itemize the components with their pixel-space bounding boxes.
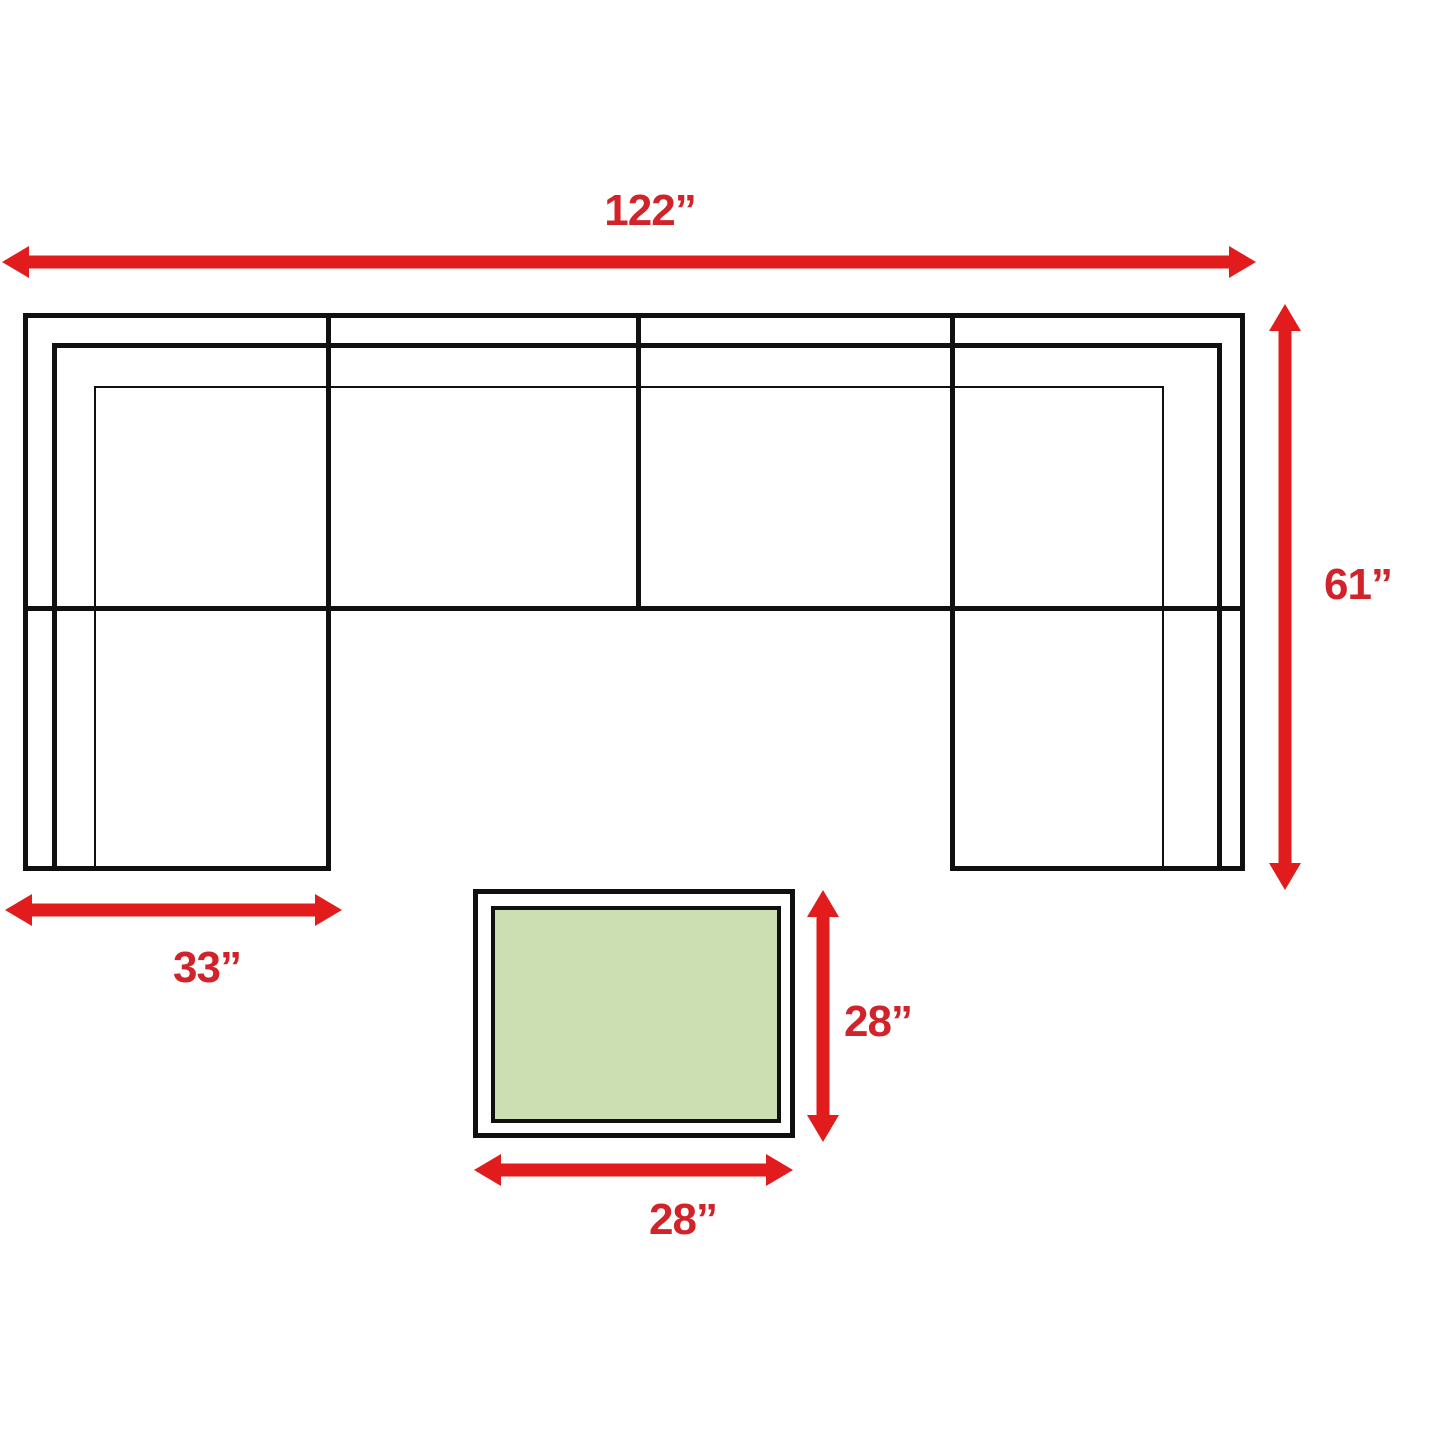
dimension-arrow-overall-width	[2, 246, 1256, 278]
arrowhead-right-icon	[315, 894, 342, 926]
sofa-right-cushion-line	[1162, 386, 1164, 871]
arrow-shaft	[494, 1164, 773, 1177]
label-table-depth: 28”	[818, 1000, 938, 1044]
sofa-divider-left	[326, 313, 331, 871]
arrowhead-right-icon	[766, 1154, 793, 1186]
arrowhead-down-icon	[1269, 863, 1301, 890]
sofa-left-outer-line	[23, 313, 28, 871]
label-chaise-width: 33”	[137, 946, 277, 990]
arrow-shaft	[1279, 324, 1292, 870]
sofa-left-arm-inner-line	[52, 343, 57, 871]
label-overall-depth: 61”	[1298, 563, 1418, 607]
diagram-canvas: 122” 61” 33” 2	[0, 0, 1445, 1445]
sofa-left-cushion-line	[94, 386, 96, 871]
sofa-back-cushion-line	[94, 386, 1164, 388]
sofa-divider-center	[636, 313, 641, 611]
sofa-divider-right	[950, 313, 955, 871]
label-table-width: 28”	[608, 1198, 758, 1242]
sofa-front-line	[23, 606, 1245, 611]
sofa-back-outer-line	[23, 313, 1245, 318]
arrow-shaft	[25, 904, 322, 917]
arrowhead-down-icon	[807, 1115, 839, 1142]
sofa-left-chaise-bottom-line	[23, 866, 331, 871]
sofa-right-arm-inner-line	[1217, 343, 1222, 871]
label-overall-width: 122”	[560, 189, 740, 233]
dimension-arrow-table-width	[474, 1154, 793, 1186]
sofa-right-chaise-bottom-line	[950, 866, 1245, 871]
sofa-right-outer-line	[1240, 313, 1245, 871]
dimension-arrow-chaise-width	[5, 894, 342, 926]
dimension-arrow-overall-depth	[1269, 304, 1301, 890]
ottoman-cushion-top	[491, 906, 781, 1123]
arrowhead-right-icon	[1229, 246, 1256, 278]
arrow-shaft	[22, 256, 1236, 269]
